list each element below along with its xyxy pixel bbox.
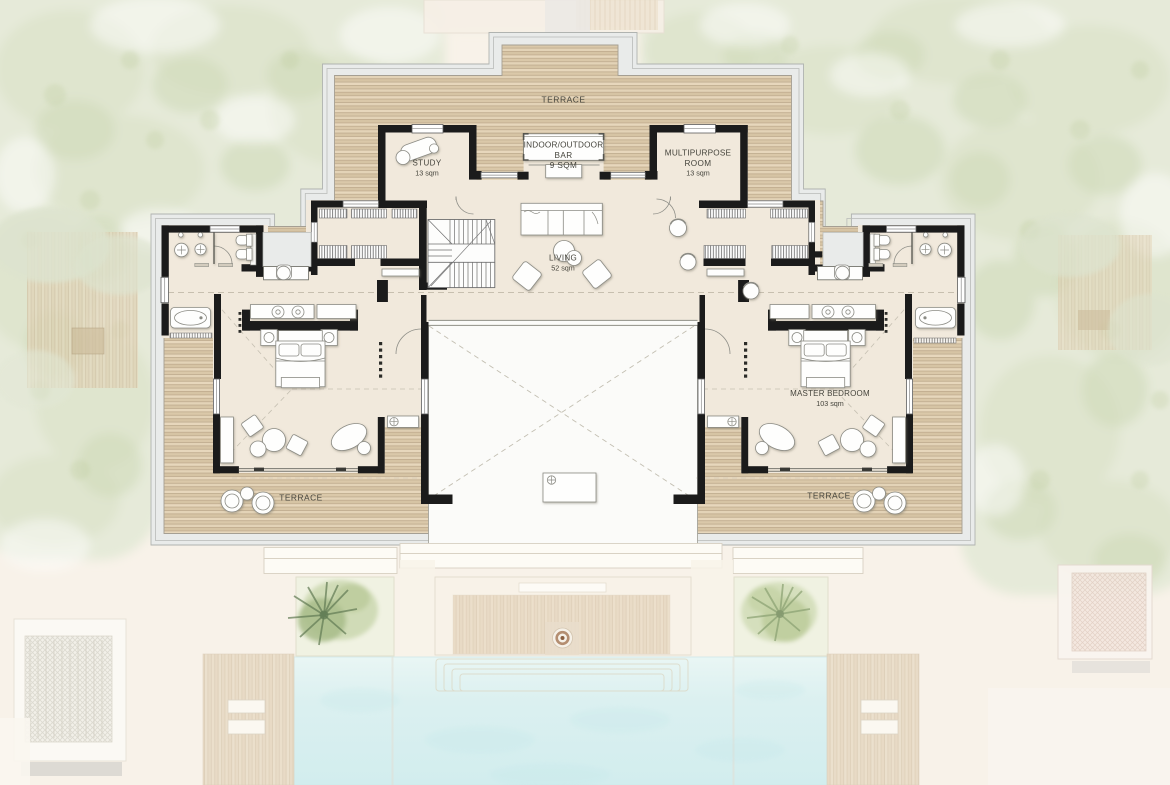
svg-text:13 sqm: 13 sqm [686,169,710,178]
svg-text:52 sqm: 52 sqm [551,264,575,273]
svg-text:MULTIPURPOSE: MULTIPURPOSE [665,149,732,158]
svg-text:9 SQM: 9 SQM [550,161,577,170]
svg-text:STUDY: STUDY [412,159,441,168]
svg-text:TERRACE: TERRACE [807,490,851,500]
svg-text:INDOOR/OUTDOOR: INDOOR/OUTDOOR [524,141,604,150]
svg-text:BAR: BAR [554,151,572,160]
svg-text:ROOM: ROOM [684,159,711,168]
svg-text:MASTER BEDROOM: MASTER BEDROOM [790,389,870,398]
svg-text:LIVING: LIVING [549,254,577,263]
svg-text:13 sqm: 13 sqm [415,169,439,178]
svg-text:103 sqm: 103 sqm [816,399,844,408]
svg-text:TERRACE: TERRACE [279,492,323,502]
svg-text:TERRACE: TERRACE [541,95,585,105]
